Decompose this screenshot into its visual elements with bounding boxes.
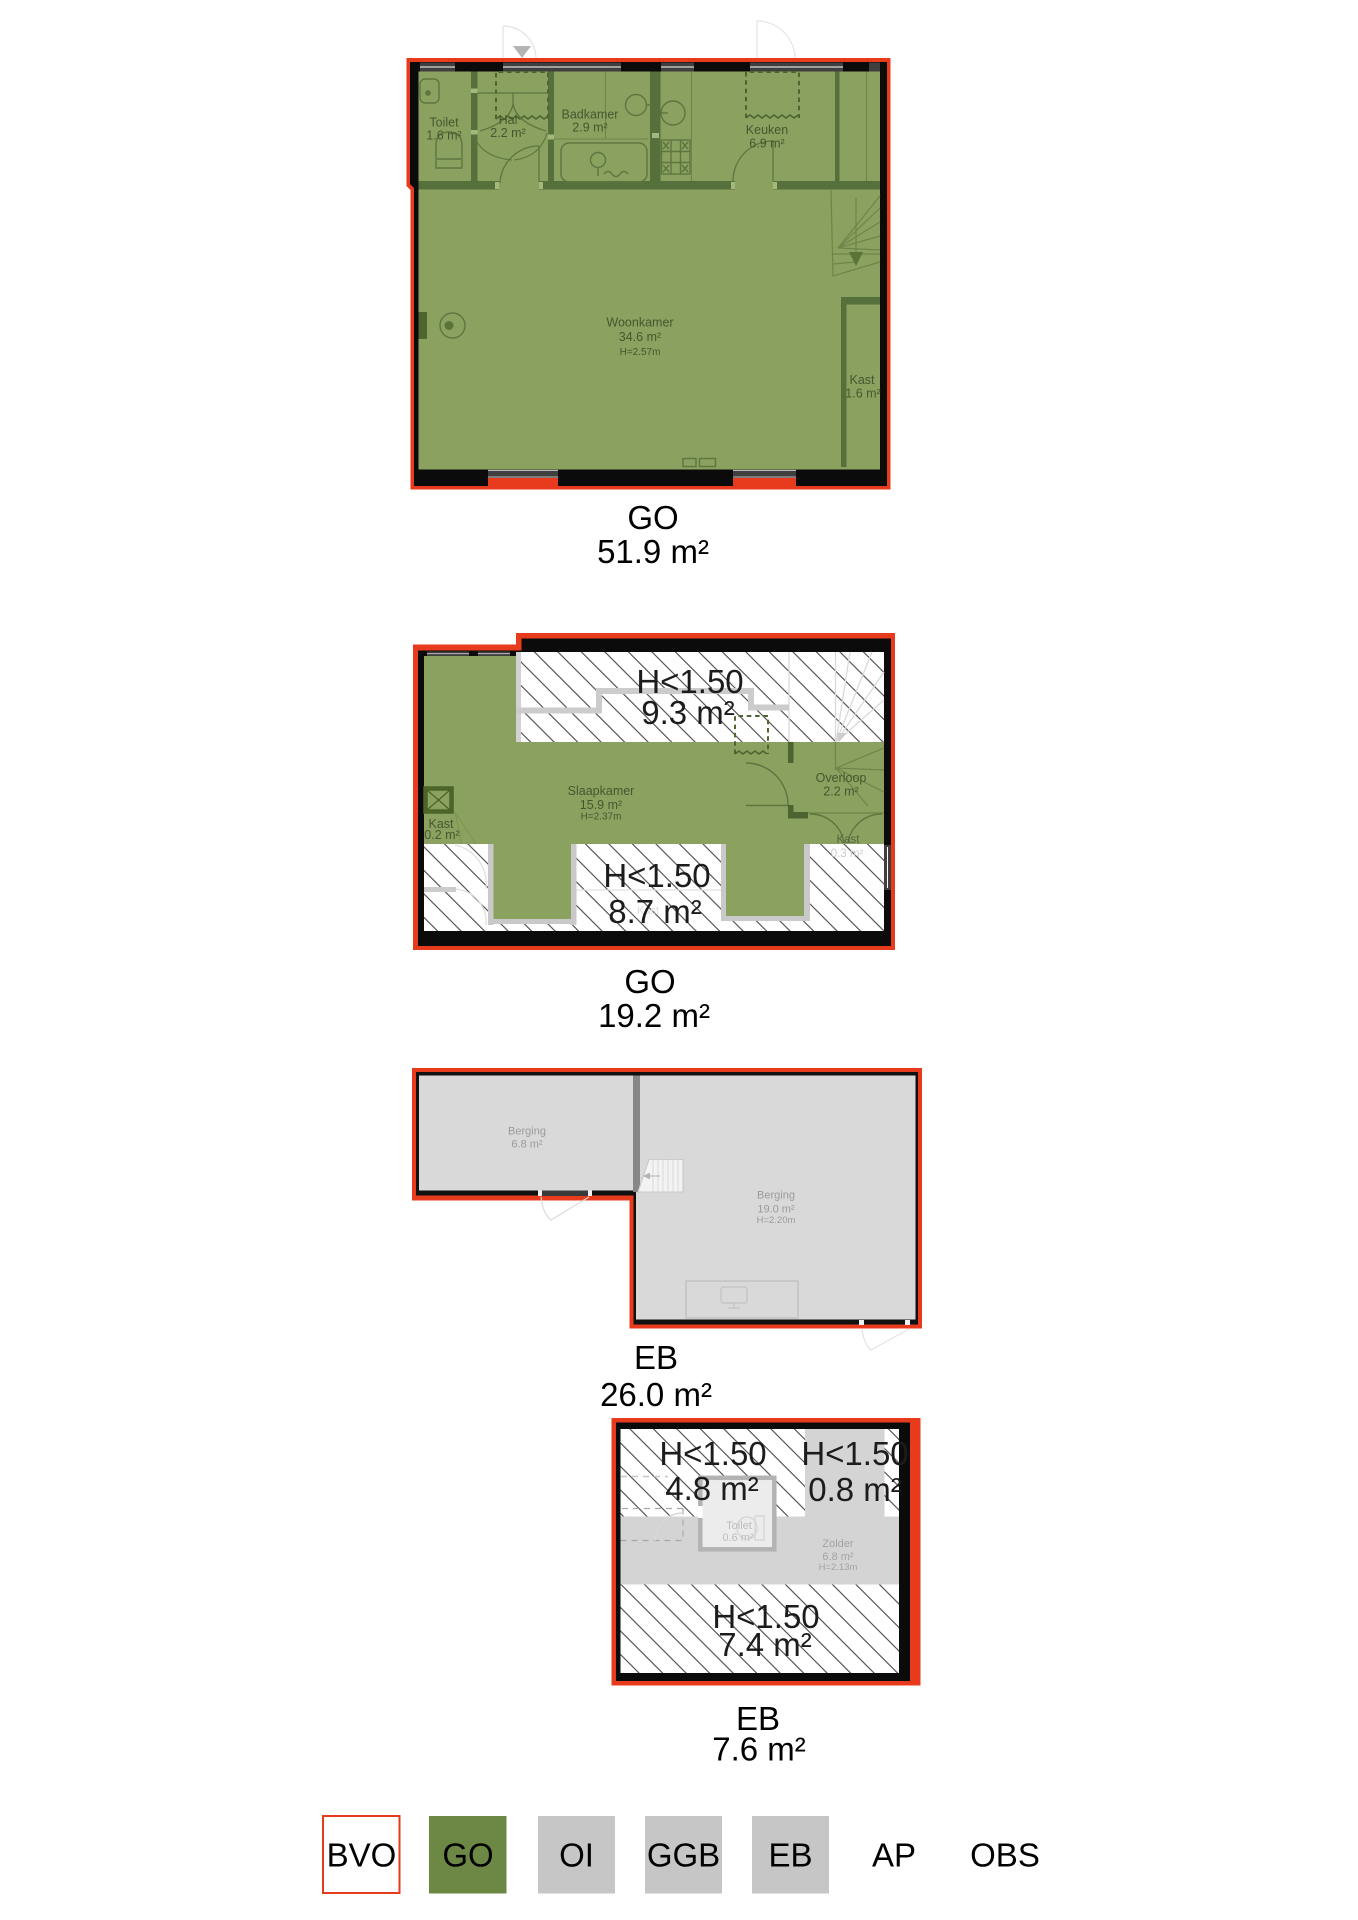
svg-text:BVO: BVO (327, 1837, 397, 1874)
svg-text:0.2 m²: 0.2 m² (424, 828, 459, 842)
svg-text:0.6 m²: 0.6 m² (722, 1532, 754, 1544)
svg-text:H=2.20m: H=2.20m (757, 1215, 796, 1226)
svg-text:OBS: OBS (970, 1837, 1040, 1874)
svg-text:H=2.13m: H=2.13m (819, 1562, 858, 1573)
svg-text:GO: GO (624, 963, 675, 1000)
svg-text:1.6 m²: 1.6 m² (845, 387, 880, 401)
svg-text:GO: GO (442, 1837, 493, 1874)
svg-text:Kast: Kast (836, 834, 860, 846)
svg-text:8.7 m²: 8.7 m² (608, 893, 702, 930)
svg-text:6.9 m²: 6.9 m² (749, 137, 784, 151)
svg-text:Keuken: Keuken (746, 123, 788, 137)
svg-text:15.9 m²: 15.9 m² (580, 798, 622, 812)
svg-text:0.3 m²: 0.3 m² (831, 848, 864, 860)
svg-text:7.4 m²: 7.4 m² (718, 1626, 812, 1663)
svg-text:Berging: Berging (508, 1126, 546, 1138)
svg-text:Toilet: Toilet (726, 1520, 752, 1532)
svg-text:Toilet: Toilet (429, 116, 459, 130)
svg-text:H<1.50: H<1.50 (801, 1435, 908, 1472)
svg-text:1.6 m²: 1.6 m² (426, 129, 461, 143)
svg-text:Hal: Hal (499, 113, 518, 127)
svg-text:Badkamer: Badkamer (562, 108, 619, 122)
svg-text:Berging: Berging (757, 1190, 795, 1202)
svg-text:6.8 m²: 6.8 m² (511, 1139, 543, 1151)
svg-text:Slaapkamer: Slaapkamer (568, 784, 635, 798)
svg-text:H=2.37m: H=2.37m (581, 812, 622, 823)
svg-text:2.2 m²: 2.2 m² (490, 126, 525, 140)
svg-text:7.6 m²: 7.6 m² (712, 1731, 806, 1768)
svg-text:34.6 m²: 34.6 m² (619, 330, 661, 344)
svg-text:Kast: Kast (849, 373, 875, 387)
svg-text:H<1.50: H<1.50 (603, 857, 710, 894)
svg-text:EB: EB (634, 1339, 678, 1376)
svg-text:9.3 m²: 9.3 m² (641, 694, 735, 731)
svg-text:GO: GO (627, 499, 678, 536)
svg-text:19.2 m²: 19.2 m² (598, 997, 710, 1034)
svg-text:GGB: GGB (647, 1837, 720, 1874)
svg-text:0.8 m²: 0.8 m² (808, 1471, 902, 1508)
svg-text:26.0 m²: 26.0 m² (600, 1376, 712, 1413)
svg-text:Overloop: Overloop (816, 771, 867, 785)
svg-text:2.2 m²: 2.2 m² (823, 785, 858, 799)
svg-text:51.9 m²: 51.9 m² (597, 533, 709, 570)
svg-text:OI: OI (559, 1837, 594, 1874)
svg-text:H=2.57m: H=2.57m (620, 347, 661, 358)
svg-text:Zolder: Zolder (822, 1538, 854, 1550)
svg-text:AP: AP (872, 1837, 916, 1874)
svg-text:19.0 m²: 19.0 m² (757, 1204, 795, 1216)
svg-text:EB: EB (768, 1837, 812, 1874)
svg-text:2.9 m²: 2.9 m² (572, 121, 607, 135)
svg-text:4.8 m²: 4.8 m² (665, 1470, 759, 1507)
svg-text:H<1.50: H<1.50 (659, 1435, 766, 1472)
svg-text:Woonkamer: Woonkamer (606, 316, 673, 330)
